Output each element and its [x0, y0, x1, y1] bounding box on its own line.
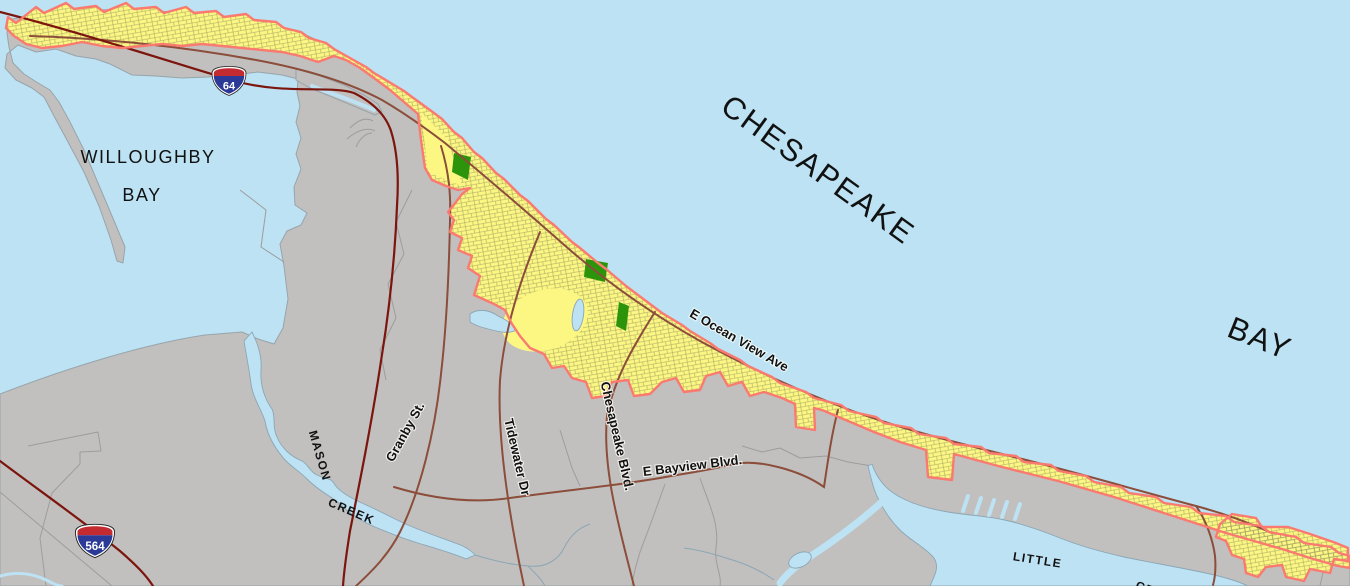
- label-willoughby: WILLOUGHBY: [80, 147, 215, 167]
- shield-i564-number: 564: [85, 541, 105, 553]
- shield-i64-number: 64: [223, 81, 236, 93]
- label-willoughby-bay: BAY: [122, 185, 161, 205]
- map-canvas[interactable]: 64 564 WILLOUGHBY BAY CHESAPEAKE BAY MAS…: [0, 0, 1350, 586]
